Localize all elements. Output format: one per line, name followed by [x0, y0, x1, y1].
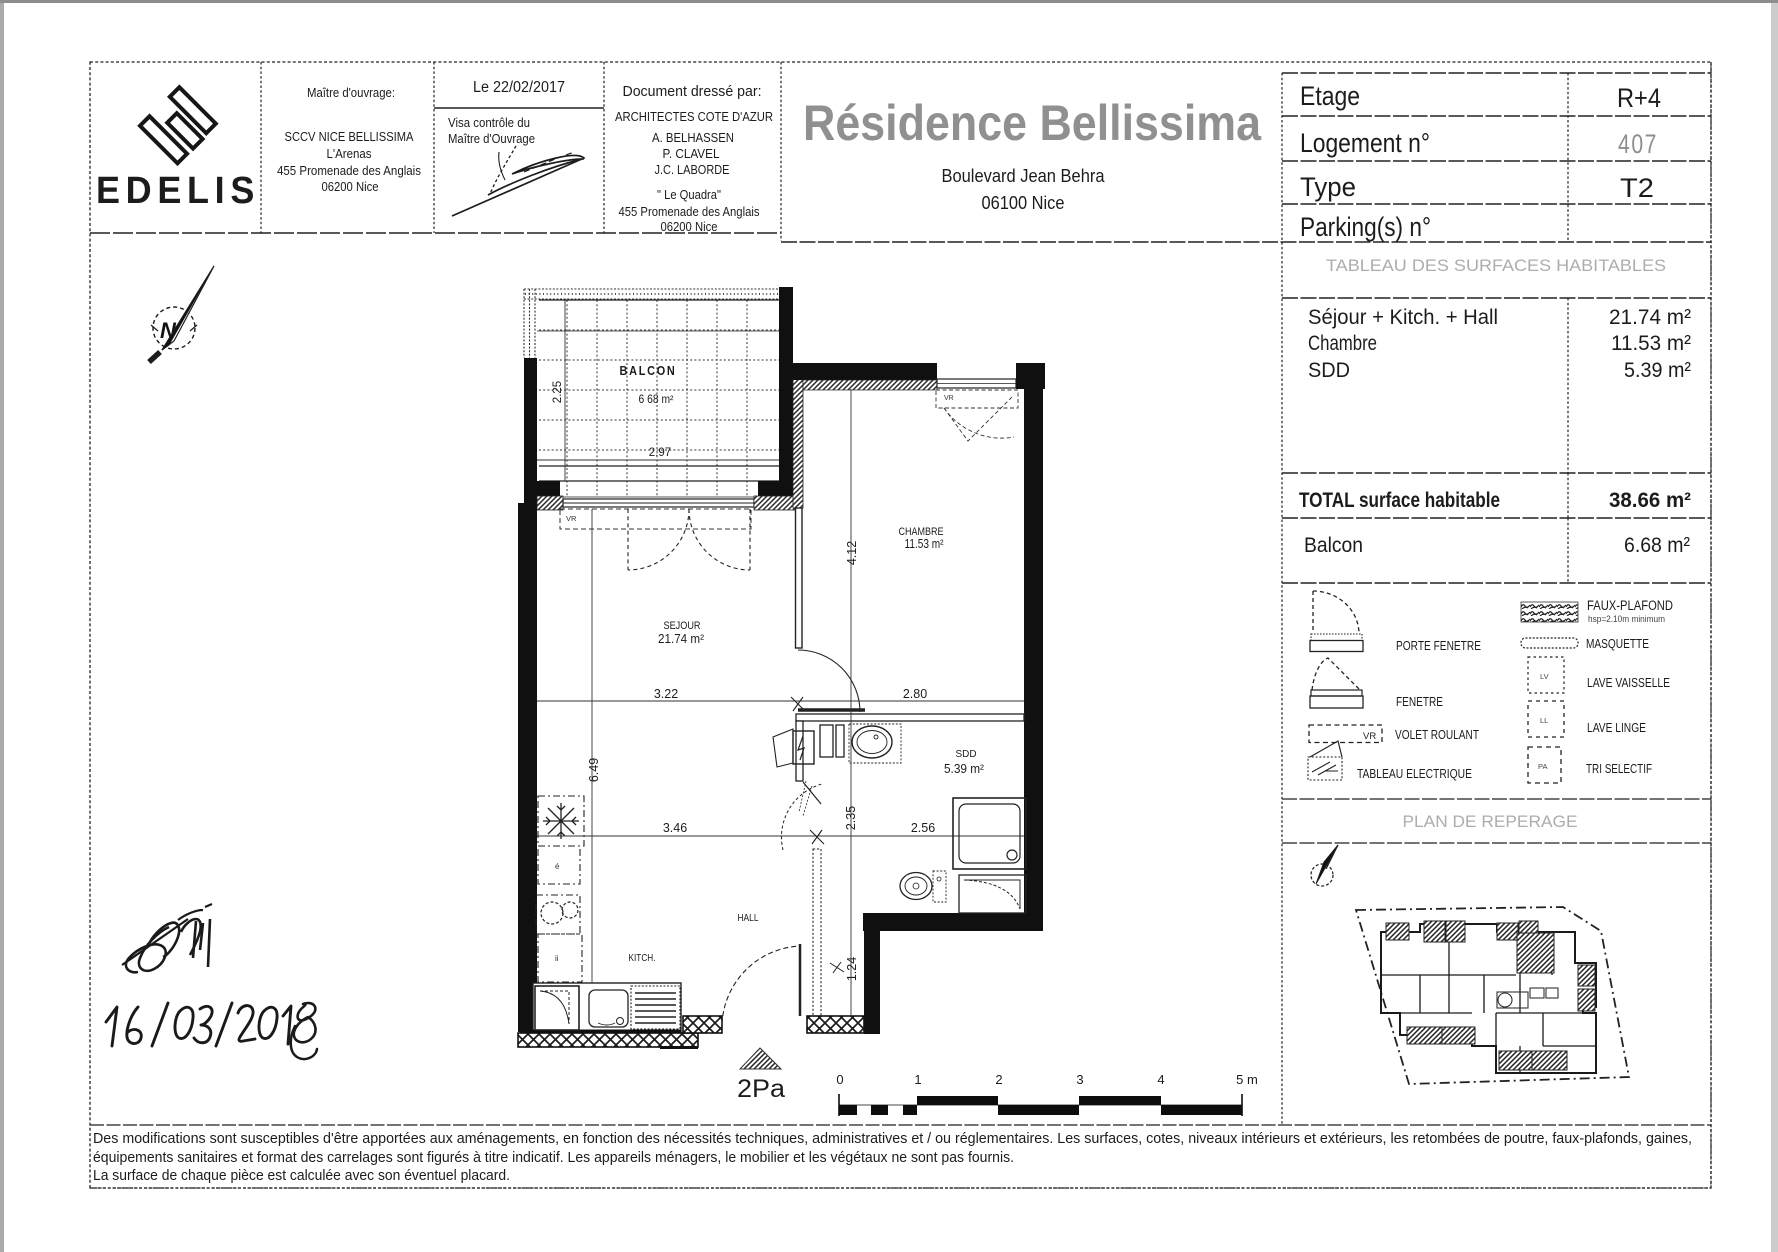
svg-text:LAVE VAISSELLE: LAVE VAISSELLE: [1587, 676, 1670, 690]
svg-text:SEJOUR: SEJOUR: [664, 620, 701, 632]
svg-text:LAVE LINGE: LAVE LINGE: [1587, 721, 1646, 735]
svg-text:" Le Quadra": " Le Quadra": [657, 187, 721, 202]
svg-text:455 Promenade des Anglais: 455 Promenade des Anglais: [619, 204, 760, 219]
svg-text:SCCV NICE BELLISSIMA: SCCV NICE BELLISSIMA: [285, 129, 414, 144]
svg-text:1.24: 1.24: [845, 957, 859, 981]
svg-text:VOLET ROULANT: VOLET ROULANT: [1395, 728, 1479, 742]
svg-text:Séjour + Kitch. + Hall: Séjour + Kitch. + Hall: [1308, 306, 1498, 329]
svg-text:2.35: 2.35: [844, 806, 858, 830]
svg-text:SDD: SDD: [1308, 359, 1350, 382]
svg-text:TABLEAU DES SURFACES HABITABLE: TABLEAU DES SURFACES HABITABLES: [1326, 256, 1666, 275]
svg-text:VR: VR: [944, 395, 954, 402]
svg-text:6.68 m²: 6.68 m²: [1624, 534, 1690, 557]
svg-text:2Pa: 2Pa: [737, 1075, 785, 1103]
svg-text:PLAN DE REPERAGE: PLAN DE REPERAGE: [1403, 812, 1578, 831]
svg-text:11.53 m²: 11.53 m²: [905, 537, 944, 551]
svg-text:5 m: 5 m: [1236, 1072, 1258, 1087]
svg-text:2.97: 2.97: [649, 447, 671, 459]
svg-text:Maître d'Ouvrage: Maître d'Ouvrage: [448, 131, 535, 146]
svg-text:TABLEAU ELECTRIQUE: TABLEAU ELECTRIQUE: [1357, 767, 1472, 781]
svg-text:MASQUETTE: MASQUETTE: [1586, 637, 1649, 651]
svg-text:6.49: 6.49: [587, 758, 601, 782]
svg-text:2.80: 2.80: [903, 687, 927, 701]
svg-text:Des modifications sont suscept: Des modifications sont susceptibles d'êt…: [93, 1131, 1692, 1147]
svg-text:38.66 m²: 38.66 m²: [1609, 489, 1691, 512]
svg-text:TRI SELECTIF: TRI SELECTIF: [1586, 762, 1652, 776]
svg-text:06200 Nice: 06200 Nice: [661, 219, 718, 234]
svg-text:TOTAL surface habitable: TOTAL surface habitable: [1299, 489, 1500, 512]
svg-text:Maître d'ouvrage:: Maître d'ouvrage:: [307, 85, 395, 100]
svg-text:FENETRE: FENETRE: [1396, 695, 1443, 709]
svg-text:La surface de chaque pièce est: La surface de chaque pièce est calculée …: [93, 1168, 510, 1184]
svg-text:06200 Nice: 06200 Nice: [322, 179, 379, 194]
svg-text:6 68 m²: 6 68 m²: [639, 394, 674, 406]
svg-text:2.25: 2.25: [552, 381, 564, 403]
svg-text:Chambre: Chambre: [1308, 332, 1377, 355]
svg-text:R+4: R+4: [1617, 83, 1661, 113]
svg-text:PA: PA: [1538, 762, 1547, 771]
svg-text:3.46: 3.46: [663, 821, 687, 835]
svg-text:Etage: Etage: [1300, 81, 1360, 111]
svg-text:Logement n°: Logement n°: [1300, 128, 1430, 158]
svg-text:Parking(s) n°: Parking(s) n°: [1300, 212, 1431, 242]
svg-text:Le 22/02/2017: Le 22/02/2017: [473, 79, 565, 96]
svg-text:hsp=2.10m minimum: hsp=2.10m minimum: [1588, 614, 1665, 624]
svg-text:21.74 m²: 21.74 m²: [658, 632, 704, 646]
svg-text:SDD: SDD: [956, 748, 977, 760]
svg-text:Visa contrôle du: Visa contrôle du: [448, 115, 530, 130]
svg-text:0: 0: [836, 1072, 843, 1087]
svg-text:3.22: 3.22: [654, 687, 678, 701]
svg-text:LL: LL: [1540, 716, 1548, 725]
svg-text:HALL: HALL: [738, 913, 759, 924]
svg-text:LV: LV: [1540, 672, 1549, 681]
svg-text:2: 2: [995, 1072, 1002, 1087]
svg-text:4: 4: [1157, 1072, 1164, 1087]
svg-text:1: 1: [914, 1072, 921, 1087]
svg-text:ARCHITECTES COTE D'AZUR: ARCHITECTES COTE D'AZUR: [615, 109, 773, 124]
svg-text:5.39 m²: 5.39 m²: [944, 762, 984, 776]
svg-text:ii: ii: [555, 954, 559, 963]
svg-text:EDELIS: EDELIS: [96, 170, 260, 212]
svg-text:Boulevard Jean Behra: Boulevard Jean Behra: [942, 166, 1106, 186]
svg-text:Résidence Bellissima: Résidence Bellissima: [803, 95, 1262, 151]
svg-text:Balcon: Balcon: [1304, 534, 1363, 557]
svg-text:FAUX-PLAFOND: FAUX-PLAFOND: [1587, 598, 1673, 613]
svg-text:4.12: 4.12: [845, 541, 859, 565]
svg-text:407: 407: [1618, 129, 1658, 159]
svg-text:A. BELHASSEN: A. BELHASSEN: [652, 130, 734, 145]
svg-text:KITCH.: KITCH.: [629, 953, 656, 964]
svg-text:Document dressé par:: Document dressé par:: [623, 83, 762, 100]
svg-text:é: é: [555, 862, 560, 871]
svg-text:21.74 m²: 21.74 m²: [1609, 306, 1691, 329]
svg-text:2.56: 2.56: [911, 821, 935, 835]
svg-text:11.53 m²: 11.53 m²: [1611, 332, 1691, 355]
svg-text:P. CLAVEL: P. CLAVEL: [663, 146, 720, 161]
svg-text:J.C. LABORDE: J.C. LABORDE: [655, 162, 730, 177]
svg-text:équipements sanitaires et form: équipements sanitaires et format des car…: [93, 1150, 1014, 1166]
svg-text:T2: T2: [1620, 173, 1654, 203]
svg-text:06100 Nice: 06100 Nice: [982, 193, 1065, 213]
svg-text:BALCON: BALCON: [620, 364, 677, 378]
svg-text:L'Arenas: L'Arenas: [327, 146, 372, 161]
svg-text:5.39 m²: 5.39 m²: [1624, 359, 1691, 382]
svg-text:455 Promenade des Anglais: 455 Promenade des Anglais: [277, 163, 421, 178]
svg-text:PORTE FENETRE: PORTE FENETRE: [1396, 639, 1481, 653]
svg-text:3: 3: [1076, 1072, 1083, 1087]
svg-text:VR: VR: [1363, 731, 1376, 742]
svg-text:VR: VR: [566, 514, 577, 523]
svg-text:Type: Type: [1300, 172, 1356, 202]
